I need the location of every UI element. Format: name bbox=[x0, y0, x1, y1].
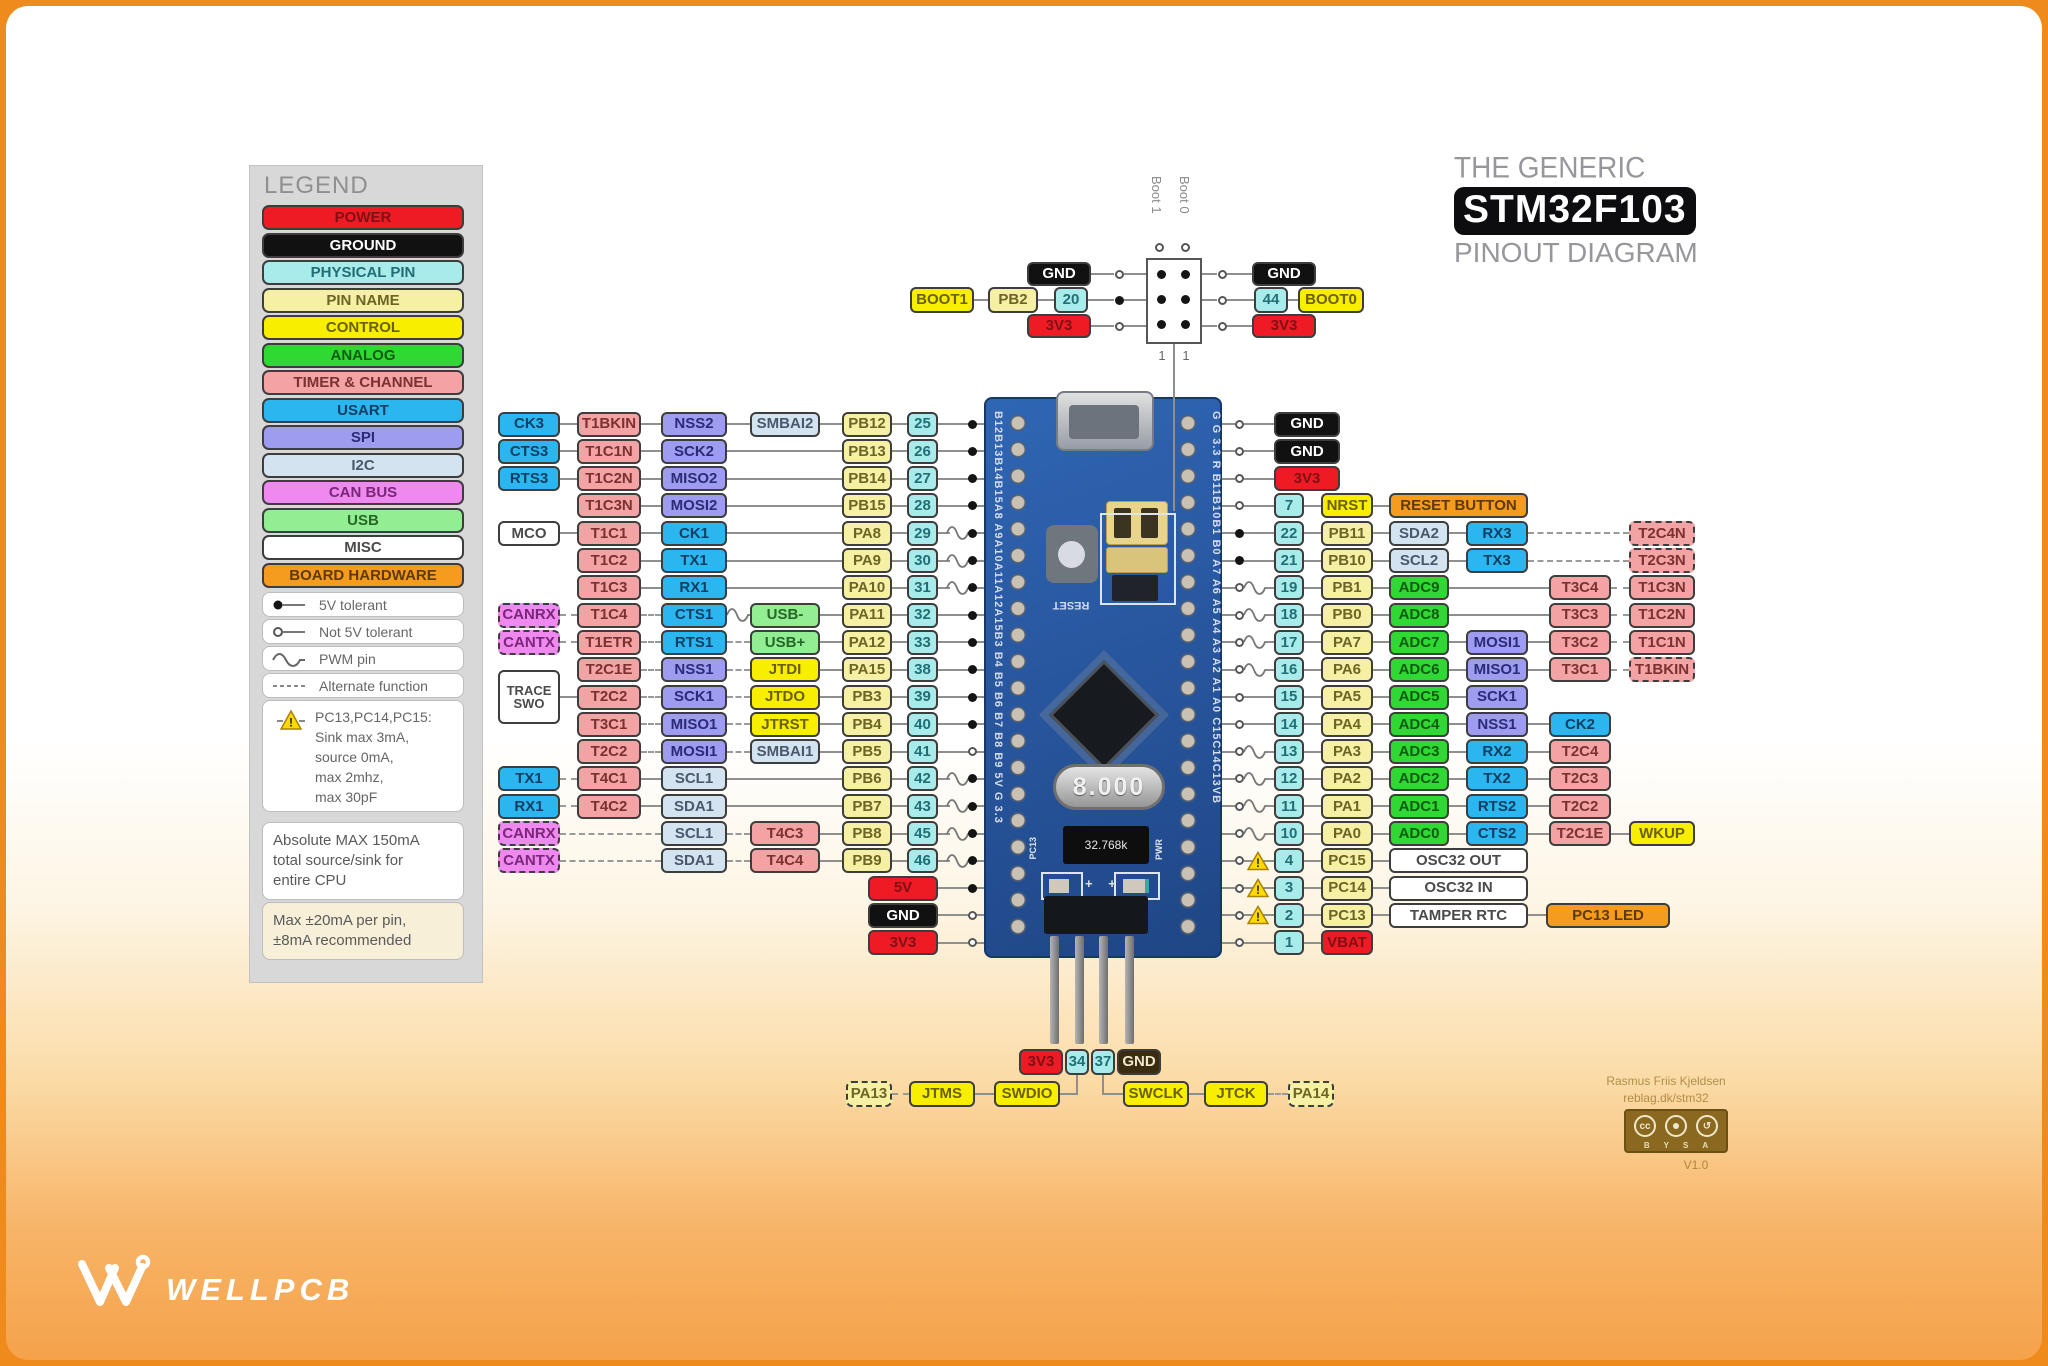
wire bbox=[938, 887, 984, 889]
chip-cts3: CTS3 bbox=[498, 439, 560, 464]
wire bbox=[938, 478, 984, 480]
chip-31: 31 bbox=[907, 575, 938, 600]
wire bbox=[1304, 778, 1321, 780]
5v-tolerant-dot-icon bbox=[1181, 320, 1190, 329]
boot-jumper-block bbox=[1146, 258, 1202, 344]
wire bbox=[560, 860, 661, 862]
wire bbox=[560, 478, 577, 480]
warning-triangle-icon: ! bbox=[277, 709, 305, 734]
not-5v-tolerant-dot-icon bbox=[1235, 420, 1244, 429]
wire bbox=[641, 723, 661, 725]
wire bbox=[892, 532, 907, 534]
chip-t1c3: T1C3 bbox=[577, 575, 641, 600]
not-5v-tolerant-dot-icon bbox=[1218, 296, 1227, 305]
chip-smbai2: SMBAI2 bbox=[750, 412, 820, 437]
chip-pa11: PA11 bbox=[842, 603, 892, 628]
legend-item-power: POWER bbox=[262, 205, 464, 230]
wire bbox=[892, 478, 907, 480]
5v-tolerant-dot-icon bbox=[1235, 556, 1244, 565]
chip-rx3: RX3 bbox=[1466, 521, 1528, 546]
chip-18: 18 bbox=[1274, 603, 1304, 628]
wire bbox=[892, 641, 907, 643]
chip-7: 7 bbox=[1274, 493, 1304, 518]
wire bbox=[938, 505, 984, 507]
chip-wkup: WKUP bbox=[1629, 821, 1695, 846]
wire bbox=[892, 669, 907, 671]
svg-text:!: ! bbox=[1256, 856, 1260, 870]
wire bbox=[892, 423, 907, 425]
chip-pa1: PA1 bbox=[1321, 794, 1373, 819]
chip-11: 11 bbox=[1274, 794, 1304, 819]
legend-note-circle: Not 5V tolerant bbox=[262, 619, 464, 644]
wire bbox=[1222, 450, 1235, 452]
5v-tolerant-dot-icon bbox=[968, 720, 977, 729]
5v-tolerant-dot-icon bbox=[968, 884, 977, 893]
credit-url: reblag.dk/stm32 bbox=[1556, 1091, 1776, 1105]
chip-adc1: ADC1 bbox=[1389, 794, 1449, 819]
wire bbox=[1222, 560, 1235, 562]
chip-gnd: GND bbox=[1274, 412, 1340, 437]
wire bbox=[892, 450, 907, 452]
wire bbox=[1528, 669, 1549, 671]
5v-tolerant-dot-icon bbox=[1157, 320, 1166, 329]
wire bbox=[1288, 299, 1298, 301]
wire bbox=[1222, 751, 1235, 753]
wire bbox=[1244, 560, 1274, 562]
chip-10: 10 bbox=[1274, 821, 1304, 846]
wire bbox=[1222, 942, 1235, 944]
wire bbox=[820, 860, 842, 862]
chip-pa13: PA13 bbox=[846, 1081, 892, 1107]
not-5v-tolerant-dot-icon bbox=[1235, 501, 1244, 510]
rtc-crystal-icon: 32.768k bbox=[1063, 826, 1149, 864]
wire bbox=[727, 805, 842, 807]
chip-pa9: PA9 bbox=[842, 548, 892, 573]
wire bbox=[641, 696, 661, 698]
wire bbox=[1449, 723, 1466, 725]
chip-pb5: PB5 bbox=[842, 739, 892, 764]
mcu-chip-icon bbox=[1049, 660, 1159, 770]
not-5v-tolerant-dot-icon bbox=[968, 938, 977, 947]
5v-tolerant-dot-icon bbox=[968, 556, 977, 565]
legend-note-text: Not 5V tolerant bbox=[319, 624, 412, 640]
boot-jumper-pins-icon bbox=[1112, 575, 1158, 601]
chip-osc32-in: OSC32 IN bbox=[1389, 876, 1528, 901]
5v-tolerant-dot-icon bbox=[968, 829, 977, 838]
header-pin-icon bbox=[1075, 936, 1084, 1044]
chip-t2c2: T2C2 bbox=[577, 685, 641, 710]
wire bbox=[1222, 587, 1235, 589]
pwm-wave-icon bbox=[1243, 634, 1269, 650]
wire bbox=[1304, 751, 1321, 753]
wire bbox=[1373, 805, 1389, 807]
wire bbox=[727, 696, 750, 698]
wire bbox=[727, 450, 842, 452]
wire bbox=[560, 778, 577, 780]
wire bbox=[560, 450, 577, 452]
not-5v-tolerant-dot-icon bbox=[1235, 938, 1244, 947]
chip-1: 1 bbox=[1274, 930, 1304, 955]
chip-3v3: 3V3 bbox=[1274, 466, 1340, 491]
chip-29: 29 bbox=[907, 521, 938, 546]
chip-42: 42 bbox=[907, 766, 938, 791]
wire bbox=[1373, 505, 1389, 507]
chip-30: 30 bbox=[907, 548, 938, 573]
title-line-1: THE GENERIC bbox=[1454, 151, 1734, 185]
wire bbox=[892, 614, 907, 616]
chip-t3c2: T3C2 bbox=[1549, 630, 1611, 655]
wire bbox=[1222, 641, 1235, 643]
chip-gnd: GND bbox=[1252, 262, 1316, 286]
chip-tx3: TX3 bbox=[1466, 548, 1528, 573]
wire bbox=[1222, 478, 1235, 480]
wire bbox=[938, 669, 984, 671]
chip-cantx: CANTX bbox=[498, 848, 560, 873]
chip-pb9: PB9 bbox=[842, 848, 892, 873]
legend-item-can-bus: CAN BUS bbox=[262, 480, 464, 505]
chip-t2c2: T2C2 bbox=[577, 739, 641, 764]
wire bbox=[1244, 450, 1274, 452]
5v-tolerant-dot-icon bbox=[968, 802, 977, 811]
crystal-frequency: 8.000 bbox=[1073, 773, 1146, 802]
chip-swdio: SWDIO bbox=[994, 1081, 1060, 1107]
wire bbox=[1304, 505, 1321, 507]
pwm-wave-icon bbox=[1243, 744, 1269, 760]
chip-gnd: GND bbox=[1274, 439, 1340, 464]
chip-adc6: ADC6 bbox=[1389, 657, 1449, 682]
5v-tolerant-dot-icon bbox=[968, 774, 977, 783]
wire bbox=[1373, 778, 1389, 780]
wire bbox=[820, 423, 842, 425]
wire bbox=[892, 505, 907, 507]
wire bbox=[1528, 805, 1549, 807]
wire bbox=[1304, 942, 1321, 944]
wire bbox=[560, 532, 577, 534]
wire bbox=[820, 696, 842, 698]
legend-item-board-hardware: BOARD HARDWARE bbox=[262, 563, 464, 588]
legend-item-usart: USART bbox=[262, 398, 464, 423]
5v-tolerant-dot-icon bbox=[968, 529, 977, 538]
wire bbox=[1373, 641, 1389, 643]
warning-triangle-icon: ! bbox=[1247, 851, 1269, 871]
chip-t4c1: T4C1 bbox=[577, 766, 641, 791]
chip-pb6: PB6 bbox=[842, 766, 892, 791]
chip-ck3: CK3 bbox=[498, 412, 560, 437]
wire bbox=[727, 860, 750, 862]
stm32f103-pinout-diagram-page: LEGEND POWERGROUNDPHYSICAL PINPIN NAMECO… bbox=[6, 6, 2042, 1360]
wire bbox=[1222, 614, 1235, 616]
chip-tx1: TX1 bbox=[498, 766, 560, 791]
chip-smbai1: SMBAI1 bbox=[750, 739, 820, 764]
chip-46: 46 bbox=[907, 848, 938, 873]
chip-usb+: USB+ bbox=[750, 630, 820, 655]
not-5v-tolerant-dot-icon bbox=[1115, 270, 1124, 279]
led1-silkscreen-label: PC13 bbox=[1028, 837, 1038, 860]
wire bbox=[1304, 723, 1321, 725]
wire bbox=[1373, 669, 1389, 671]
wire bbox=[1244, 532, 1274, 534]
dash-icon bbox=[271, 679, 307, 696]
board-holes-left-icon bbox=[1005, 410, 1031, 940]
boot1-label: Boot 1 bbox=[1146, 176, 1164, 242]
not-5v-tolerant-dot-icon bbox=[1235, 856, 1244, 865]
chip-miso1: MISO1 bbox=[1466, 657, 1528, 682]
chip-pc13-led: PC13 LED bbox=[1546, 903, 1670, 928]
wire bbox=[892, 805, 907, 807]
chip-t1bkin: T1BKIN bbox=[1629, 657, 1695, 682]
chip-t1c2n: T1C2N bbox=[577, 466, 641, 491]
wire bbox=[727, 778, 842, 780]
chip-rts1: RTS1 bbox=[661, 630, 727, 655]
wire bbox=[1449, 587, 1549, 589]
5v-tolerant-dot-icon bbox=[1157, 270, 1166, 279]
legend-note-dash: Alternate function bbox=[262, 673, 464, 698]
wire bbox=[1304, 914, 1321, 916]
chip-17: 17 bbox=[1274, 630, 1304, 655]
wire bbox=[1222, 723, 1235, 725]
wire bbox=[1528, 532, 1629, 534]
chip-adc2: ADC2 bbox=[1389, 766, 1449, 791]
chip-rts3: RTS3 bbox=[498, 466, 560, 491]
wire bbox=[1373, 723, 1389, 725]
chip-t1bkin: T1BKIN bbox=[577, 412, 641, 437]
chip-jtrst: JTRST bbox=[750, 712, 820, 737]
legend-note-text: Alternate function bbox=[319, 678, 428, 694]
legend-item-misc: MISC bbox=[262, 535, 464, 560]
chip-t1c3n: T1C3N bbox=[1629, 575, 1695, 600]
wire bbox=[641, 778, 661, 780]
pwm-wave-icon bbox=[1243, 798, 1269, 814]
chip-pb7: PB7 bbox=[842, 794, 892, 819]
wire bbox=[892, 1093, 909, 1095]
chip-pa6: PA6 bbox=[1321, 657, 1373, 682]
chip-cantx: CANTX bbox=[498, 630, 560, 655]
chip-pb11: PB11 bbox=[1321, 521, 1373, 546]
5v-tolerant-dot-icon bbox=[1235, 529, 1244, 538]
wire bbox=[1528, 914, 1546, 916]
wire bbox=[974, 299, 988, 301]
boot0-label: Boot 0 bbox=[1174, 176, 1192, 242]
wire bbox=[1304, 641, 1321, 643]
wire bbox=[560, 696, 577, 698]
wire bbox=[727, 505, 842, 507]
wire bbox=[1449, 614, 1549, 616]
wire bbox=[1173, 344, 1175, 511]
not-5v-tolerant-dot-icon bbox=[1218, 270, 1227, 279]
chip-3: 3 bbox=[1274, 876, 1304, 901]
wire bbox=[1373, 614, 1389, 616]
cc-license-badge: cc ↺ BYSA bbox=[1624, 1109, 1728, 1153]
board-silkscreen-right: G G 3.3 R B11B10B1 B0 A7 A6 A5 A4 A3 A2 … bbox=[1206, 411, 1221, 945]
wire bbox=[1304, 860, 1321, 862]
chip-34: 34 bbox=[1065, 1049, 1089, 1075]
5v-tolerant-dot-icon bbox=[968, 693, 977, 702]
wire bbox=[727, 723, 750, 725]
not-5v-tolerant-dot-icon bbox=[1235, 720, 1244, 729]
chip-t2c4n: T2C4N bbox=[1629, 521, 1695, 546]
board-holes-right-icon bbox=[1175, 410, 1201, 940]
5v-tolerant-dot-icon bbox=[968, 447, 977, 456]
legend-item-i2c: I2C bbox=[262, 453, 464, 478]
chip-5v: 5V bbox=[868, 876, 938, 901]
legend-note-pc13-warning: !PC13,PC14,PC15:Sink max 3mA,source 0mA,… bbox=[262, 700, 464, 812]
chip-t1c1n: T1C1N bbox=[577, 439, 641, 464]
chip-3v3: 3V3 bbox=[1019, 1049, 1063, 1075]
chip-pa14: PA14 bbox=[1288, 1081, 1334, 1107]
wire bbox=[1222, 860, 1235, 862]
wire bbox=[1528, 560, 1629, 562]
chip-2: 2 bbox=[1274, 903, 1304, 928]
wire bbox=[1222, 505, 1235, 507]
wire bbox=[641, 614, 661, 616]
chip-pa7: PA7 bbox=[1321, 630, 1373, 655]
cc-by-label: BY bbox=[1644, 1141, 1683, 1150]
wire bbox=[820, 723, 842, 725]
wire bbox=[1373, 532, 1389, 534]
wire bbox=[1227, 299, 1254, 301]
jumper-one-label: 1 bbox=[1178, 348, 1194, 364]
chip-jtms: JTMS bbox=[909, 1081, 975, 1107]
chip-t1c1n: T1C1N bbox=[1629, 630, 1695, 655]
wire bbox=[1449, 805, 1466, 807]
chip-t1c2n: T1C2N bbox=[1629, 603, 1695, 628]
wellpcb-wordmark: WELLPCB bbox=[166, 1272, 354, 1308]
chip-adc7: ADC7 bbox=[1389, 630, 1449, 655]
chip-25: 25 bbox=[907, 412, 938, 437]
chip-pa8: PA8 bbox=[842, 521, 892, 546]
chip-27: 27 bbox=[907, 466, 938, 491]
legend-title: LEGEND bbox=[264, 172, 369, 200]
chip-pa2: PA2 bbox=[1321, 766, 1373, 791]
chip-adc4: ADC4 bbox=[1389, 712, 1449, 737]
not-5v-tolerant-dot-icon bbox=[1115, 322, 1124, 331]
wire bbox=[560, 614, 577, 616]
wire bbox=[892, 587, 907, 589]
chip-pb10: PB10 bbox=[1321, 548, 1373, 573]
wire bbox=[892, 723, 907, 725]
wire bbox=[560, 805, 577, 807]
pwm-wave-icon bbox=[726, 607, 752, 623]
wire bbox=[1227, 325, 1252, 327]
not-5v-tolerant-dot-icon bbox=[1235, 884, 1244, 893]
wire bbox=[1373, 587, 1389, 589]
not-5v-tolerant-dot-icon bbox=[1155, 243, 1164, 252]
wire bbox=[938, 641, 984, 643]
wire bbox=[1304, 532, 1321, 534]
legend-item-timer-channel: TIMER & CHANNEL bbox=[262, 370, 464, 395]
chip-reset-button: RESET BUTTON bbox=[1389, 493, 1528, 518]
wire bbox=[1222, 532, 1235, 534]
chip-14: 14 bbox=[1274, 712, 1304, 737]
chip-nss2: NSS2 bbox=[661, 412, 727, 437]
wire bbox=[892, 833, 907, 835]
wire bbox=[1076, 1075, 1078, 1095]
chip-pb15: PB15 bbox=[842, 493, 892, 518]
pwm-wave-icon bbox=[1243, 826, 1269, 842]
5v-tolerant-dot-icon bbox=[968, 474, 977, 483]
wire bbox=[938, 914, 984, 916]
5v-tolerant-dot-icon bbox=[968, 420, 977, 429]
chip-vbat: VBAT bbox=[1321, 930, 1373, 955]
not-5v-tolerant-dot-icon bbox=[1235, 474, 1244, 483]
wire bbox=[1304, 669, 1321, 671]
wire bbox=[1304, 805, 1321, 807]
chip-32: 32 bbox=[907, 603, 938, 628]
wire bbox=[938, 942, 984, 944]
chip-adc8: ADC8 bbox=[1389, 603, 1449, 628]
chip-cts1: CTS1 bbox=[661, 603, 727, 628]
chip-pb2: PB2 bbox=[988, 287, 1038, 313]
chip-nss1: NSS1 bbox=[1466, 712, 1528, 737]
chip-cts2: CTS2 bbox=[1466, 821, 1528, 846]
chip-22: 22 bbox=[1274, 521, 1304, 546]
chip-rx1: RX1 bbox=[498, 794, 560, 819]
chip-adc9: ADC9 bbox=[1389, 575, 1449, 600]
chip-adc3: ADC3 bbox=[1389, 739, 1449, 764]
legend-note-wave: PWM pin bbox=[262, 646, 464, 671]
legend-item-pin-name: PIN NAME bbox=[262, 288, 464, 313]
wire bbox=[1091, 273, 1114, 275]
wire bbox=[1373, 887, 1389, 889]
wire bbox=[1373, 914, 1389, 916]
5v-tolerant-dot-icon bbox=[968, 638, 977, 647]
legend-item-usb: USB bbox=[262, 508, 464, 533]
usb-connector-icon bbox=[1056, 391, 1154, 451]
chip-adc0: ADC0 bbox=[1389, 821, 1449, 846]
not-5v-tolerant-dot-icon bbox=[1235, 693, 1244, 702]
chip-t3c4: T3C4 bbox=[1549, 575, 1611, 600]
cc-icon: cc bbox=[1634, 1115, 1656, 1137]
pwm-wave-icon bbox=[1243, 771, 1269, 787]
dot-icon bbox=[271, 598, 307, 615]
reset-button-icon bbox=[1046, 525, 1098, 583]
chip-t1c2: T1C2 bbox=[577, 548, 641, 573]
chip-mosi1: MOSI1 bbox=[661, 739, 727, 764]
chip-pb12: PB12 bbox=[842, 412, 892, 437]
wire bbox=[1222, 914, 1235, 916]
wire bbox=[938, 450, 984, 452]
legend-info-box-1: Absolute MAX 150mAtotal source/sink fore… bbox=[262, 822, 464, 900]
chip-nrst: NRST bbox=[1321, 493, 1373, 518]
rtc-frequency: 32.768k bbox=[1085, 838, 1128, 852]
wire bbox=[641, 805, 661, 807]
5v-tolerant-dot-icon bbox=[968, 856, 977, 865]
svg-text:!: ! bbox=[289, 716, 293, 730]
wire bbox=[1304, 587, 1321, 589]
chip-t1c4: T1C4 bbox=[577, 603, 641, 628]
wire bbox=[727, 532, 842, 534]
chip-28: 28 bbox=[907, 493, 938, 518]
chip-gnd: GND bbox=[1117, 1049, 1161, 1075]
not-5v-tolerant-dot-icon bbox=[1235, 911, 1244, 920]
chip-gnd: GND bbox=[868, 903, 938, 928]
jumper-one-label: 1 bbox=[1154, 348, 1170, 364]
chip-pc13: PC13 bbox=[1321, 903, 1373, 928]
wire bbox=[820, 614, 842, 616]
wire bbox=[1304, 833, 1321, 835]
wave-icon bbox=[271, 652, 307, 671]
legend-panel: LEGEND POWERGROUNDPHYSICAL PINPIN NAMECO… bbox=[249, 165, 483, 983]
wire bbox=[1244, 723, 1274, 725]
wire bbox=[1244, 478, 1274, 480]
wire bbox=[1227, 273, 1252, 275]
wire bbox=[820, 641, 842, 643]
chip-boot1: BOOT1 bbox=[910, 287, 974, 313]
reset-silkscreen-label: RESET bbox=[1036, 599, 1106, 611]
legend-item-spi: SPI bbox=[262, 425, 464, 450]
chip-trace-swo: TRACE SWO bbox=[498, 670, 560, 724]
wire bbox=[938, 423, 984, 425]
